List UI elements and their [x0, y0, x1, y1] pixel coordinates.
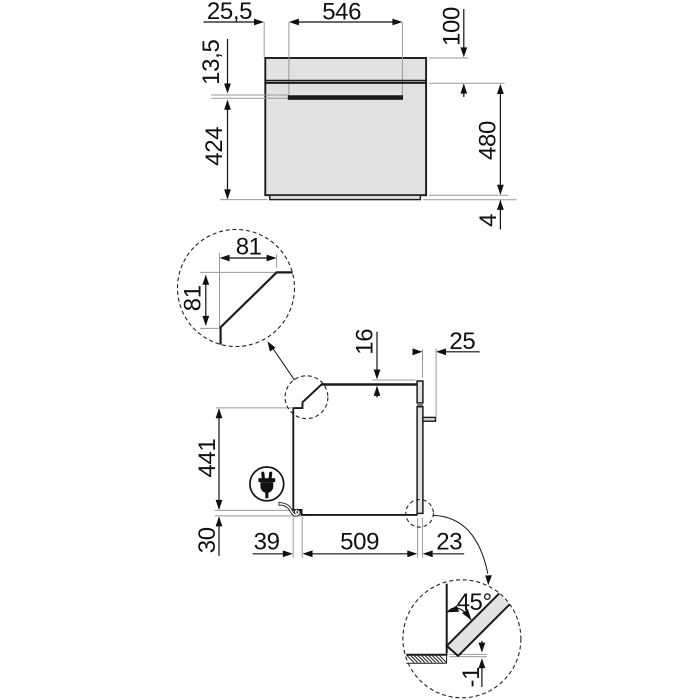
- svg-text:81: 81: [236, 234, 262, 261]
- svg-text:4: 4: [475, 214, 502, 227]
- svg-text:546: 546: [322, 0, 361, 25]
- svg-text:509: 509: [340, 528, 379, 555]
- svg-text:45°: 45°: [457, 589, 492, 616]
- svg-text:-1: -1: [458, 667, 485, 688]
- svg-text:480: 480: [475, 121, 502, 160]
- svg-text:23: 23: [436, 528, 462, 555]
- svg-text:424: 424: [201, 127, 228, 166]
- svg-text:30: 30: [194, 527, 221, 553]
- svg-text:441: 441: [194, 439, 221, 478]
- svg-text:100: 100: [439, 7, 466, 46]
- svg-text:25: 25: [449, 328, 475, 355]
- svg-text:39: 39: [254, 528, 280, 555]
- svg-text:25,5: 25,5: [207, 0, 252, 25]
- svg-text:16: 16: [352, 329, 379, 355]
- svg-text:81: 81: [179, 285, 206, 311]
- svg-text:13,5: 13,5: [198, 40, 225, 85]
